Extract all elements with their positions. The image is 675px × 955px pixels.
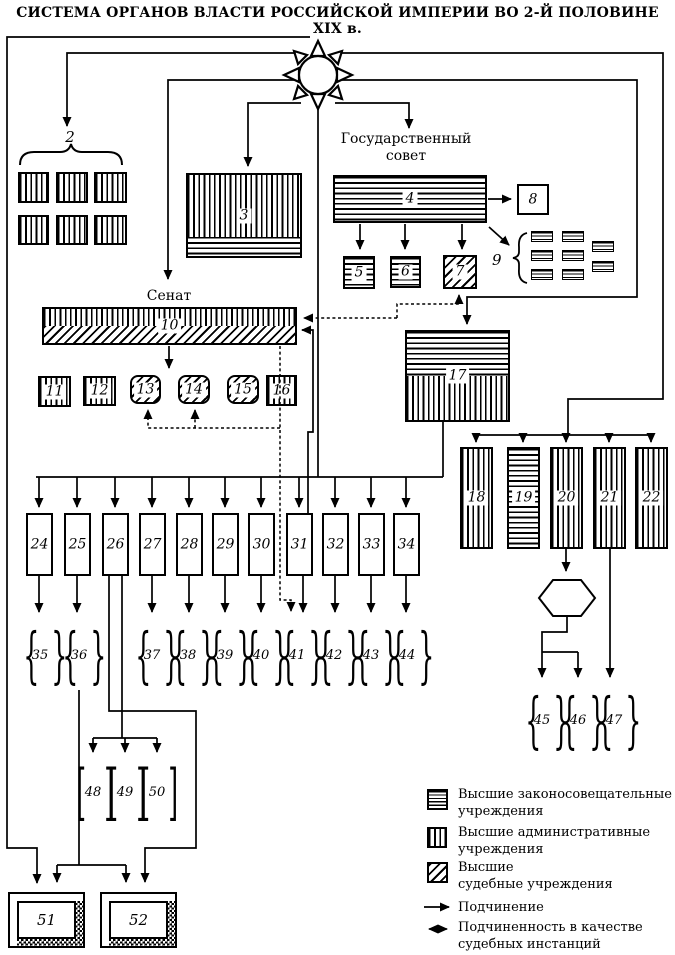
legend-item-administrative: Высшие административные учреждения (458, 824, 650, 858)
legend-swatch-administrative (427, 827, 447, 848)
group2-box (94, 215, 127, 245)
node-7: 7 (443, 255, 477, 289)
legend-item-judicial: Высшие судебные учреждения (458, 859, 613, 893)
node-32: 32 (322, 513, 349, 576)
node-36: {36} (61, 622, 97, 688)
node-24-label: 24 (31, 537, 49, 552)
node-18-label: 18 (465, 491, 489, 506)
node-27-label: 27 (144, 537, 162, 552)
node-10-label: 10 (158, 319, 182, 334)
state-council-caption: Государственный совет (325, 131, 487, 165)
node-37: {37} (134, 622, 170, 688)
node-23-label: 23 (549, 590, 585, 607)
node-24: 24 (26, 513, 53, 576)
group9-box (592, 241, 614, 252)
node-31-label: 31 (291, 537, 309, 552)
node-8-label: 8 (529, 192, 538, 207)
node-3: 3 (186, 173, 302, 258)
node-30: 30 (248, 513, 275, 576)
legend-item-subordination: Подчинение (458, 899, 544, 916)
group2-box (94, 172, 127, 203)
node-22: 22 (635, 447, 668, 549)
node-50-label: 50 (148, 785, 167, 800)
node-19: 19 (507, 447, 540, 549)
node-7-label: 7 (453, 265, 468, 280)
node-21: 21 (593, 447, 626, 549)
node-17: 17 (405, 330, 510, 422)
node-5-label: 5 (352, 265, 367, 280)
node-40: {40} (243, 622, 279, 688)
node-3-lower-hatch (188, 237, 300, 256)
node-20: 20 (550, 447, 583, 549)
node-48-label: 48 (84, 785, 103, 800)
node-16-label: 16 (270, 383, 294, 398)
node-8: 8 (517, 184, 549, 215)
group2-box (56, 172, 88, 203)
node-6-label: 6 (398, 265, 413, 280)
node-33: 33 (358, 513, 385, 576)
legend-item-judicial-subordination: Подчиненность в качестве судебных инстан… (458, 919, 643, 953)
node-50: [50] (142, 760, 172, 824)
node-51-label: 51 (17, 901, 76, 939)
node-30-label: 30 (253, 537, 271, 552)
diagram-title: СИСТЕМА ОРГАНОВ ВЛАСТИ РОССИЙСКОЙ ИМПЕРИ… (0, 5, 675, 37)
node-3-label: 3 (237, 208, 252, 223)
diagram-canvas: СИСТЕМА ОРГАНОВ ВЛАСТИ РОССИЙСКОЙ ИМПЕРИ… (0, 0, 675, 955)
node-13-label: 13 (134, 382, 158, 397)
node-5: 5 (343, 256, 375, 289)
node-35: {35} (22, 622, 58, 688)
node-19-label: 19 (512, 491, 536, 506)
group9-box (592, 261, 614, 272)
node-26: 26 (102, 513, 129, 576)
node-2-label: 2 (52, 129, 88, 146)
node-44: {44} (389, 622, 425, 688)
group2-box (18, 172, 49, 203)
group9-box (562, 231, 584, 242)
node-31: 31 (286, 513, 313, 576)
node-3-upper-hatch (188, 175, 300, 237)
node-45: {45} (525, 688, 559, 752)
group9-box (562, 250, 584, 261)
node-14-label: 14 (182, 382, 206, 397)
node-25-label: 25 (69, 537, 87, 552)
node-21-label: 21 (598, 491, 622, 506)
node-9-label: 9 (492, 252, 502, 269)
node-34-label: 34 (398, 537, 416, 552)
legend-item-legislative: Высшие законосовещательные учреждения (458, 786, 672, 820)
node-27: 27 (139, 513, 166, 576)
node-16: 16 (266, 375, 297, 406)
node-41: {41} (279, 622, 315, 688)
group9-box (531, 231, 553, 242)
node-28: 28 (176, 513, 203, 576)
node-28-label: 28 (181, 537, 199, 552)
node-12-label: 12 (88, 384, 112, 399)
node-52: 52 (100, 892, 177, 948)
node-11: 11 (38, 376, 71, 407)
node-32-label: 32 (327, 537, 345, 552)
node-48: [48] (78, 760, 108, 824)
node-33-label: 33 (363, 537, 381, 552)
node-14: 14 (178, 375, 210, 404)
group2-brace (20, 144, 122, 165)
node-49: [49] (110, 760, 140, 824)
node-46: {46} (561, 688, 595, 752)
senate-caption: Сенат (139, 288, 199, 305)
node-29-label: 29 (217, 537, 235, 552)
node-11-label: 11 (43, 384, 67, 399)
legend-swatch-judicial (427, 862, 448, 883)
node-38: {38} (170, 622, 206, 688)
node-39: {39} (207, 622, 243, 688)
node-25: 25 (64, 513, 91, 576)
group2-box (18, 215, 49, 245)
group9-box (562, 269, 584, 280)
node-18: 18 (460, 447, 493, 549)
node-29: 29 (212, 513, 239, 576)
node-49-label: 49 (116, 785, 135, 800)
group2-box (56, 215, 88, 245)
node-15-label: 15 (231, 382, 255, 397)
group9-box (531, 269, 553, 280)
node-22-label: 22 (640, 491, 664, 506)
node-47: {47} (597, 688, 631, 752)
node-13: 13 (130, 375, 161, 404)
node-51: 51 (8, 892, 85, 948)
node-12: 12 (83, 376, 116, 406)
node-52-label: 52 (109, 901, 168, 939)
node-6: 6 (390, 256, 421, 288)
node-43: {43} (353, 622, 389, 688)
node-4: 4 (333, 175, 487, 223)
node-20-label: 20 (555, 491, 579, 506)
node-10: 10 (42, 307, 297, 345)
group9-box (531, 250, 553, 261)
group9-brace (513, 233, 527, 283)
node-17-label: 17 (446, 369, 470, 384)
node-42: {42} (316, 622, 352, 688)
node-15: 15 (227, 375, 259, 404)
node-34: 34 (393, 513, 420, 576)
node-26-label: 26 (107, 537, 125, 552)
node-1-label: 1 (310, 66, 326, 83)
legend-swatch-legislative (427, 789, 448, 810)
node-4-label: 4 (403, 192, 418, 207)
